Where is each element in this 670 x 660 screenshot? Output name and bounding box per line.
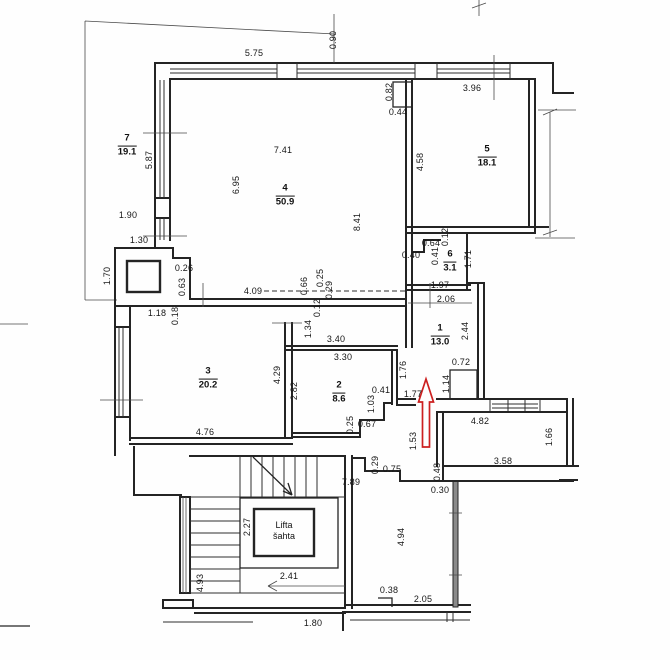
lift-shaft-walls xyxy=(240,498,338,568)
chimney-shaft xyxy=(115,248,190,306)
entrance-arrow xyxy=(419,379,434,447)
window-glazing xyxy=(119,63,540,607)
floor-plan: Lifta šahta 5.750.903.960.820.444.587.41… xyxy=(0,0,670,660)
interior-walls xyxy=(115,79,573,481)
stairs xyxy=(190,456,345,593)
floorplan-drawing xyxy=(0,0,670,660)
dimension-lines xyxy=(0,0,576,591)
